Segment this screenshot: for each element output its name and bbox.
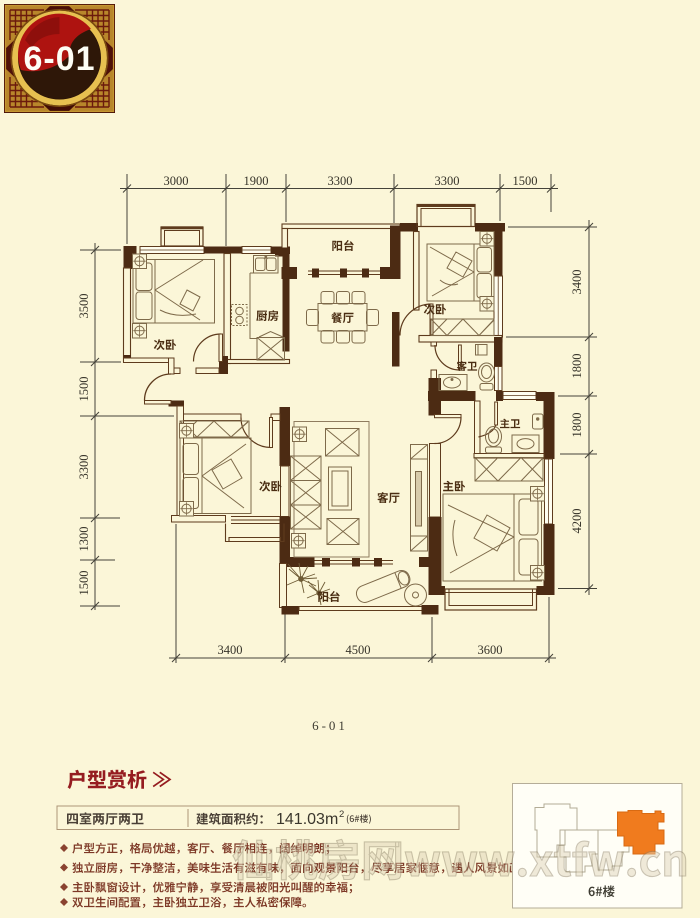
svg-text:141.03m: 141.03m [276,811,338,828]
svg-text:1800: 1800 [570,413,584,438]
svg-text:3400: 3400 [570,270,584,295]
svg-text:1500: 1500 [77,571,91,596]
svg-text:2: 2 [339,809,344,820]
svg-text:1300: 1300 [77,527,91,552]
svg-text:3400: 3400 [218,643,243,657]
svg-text:1500: 1500 [513,174,538,188]
svg-text:3300: 3300 [77,455,91,480]
svg-text:3600: 3600 [478,643,503,657]
svg-text:3500: 3500 [77,294,91,319]
svg-text:6-01: 6-01 [312,718,348,733]
svg-text:1900: 1900 [244,174,269,188]
svg-text:1800: 1800 [570,354,584,379]
svg-text:1500: 1500 [77,377,91,402]
svg-text:3000: 3000 [164,174,189,188]
svg-text:4200: 4200 [570,509,584,534]
svg-text:3300: 3300 [328,174,353,188]
svg-text:4500: 4500 [346,643,371,657]
svg-text:3300: 3300 [435,174,460,188]
svg-text:6-01: 6-01 [23,40,95,78]
